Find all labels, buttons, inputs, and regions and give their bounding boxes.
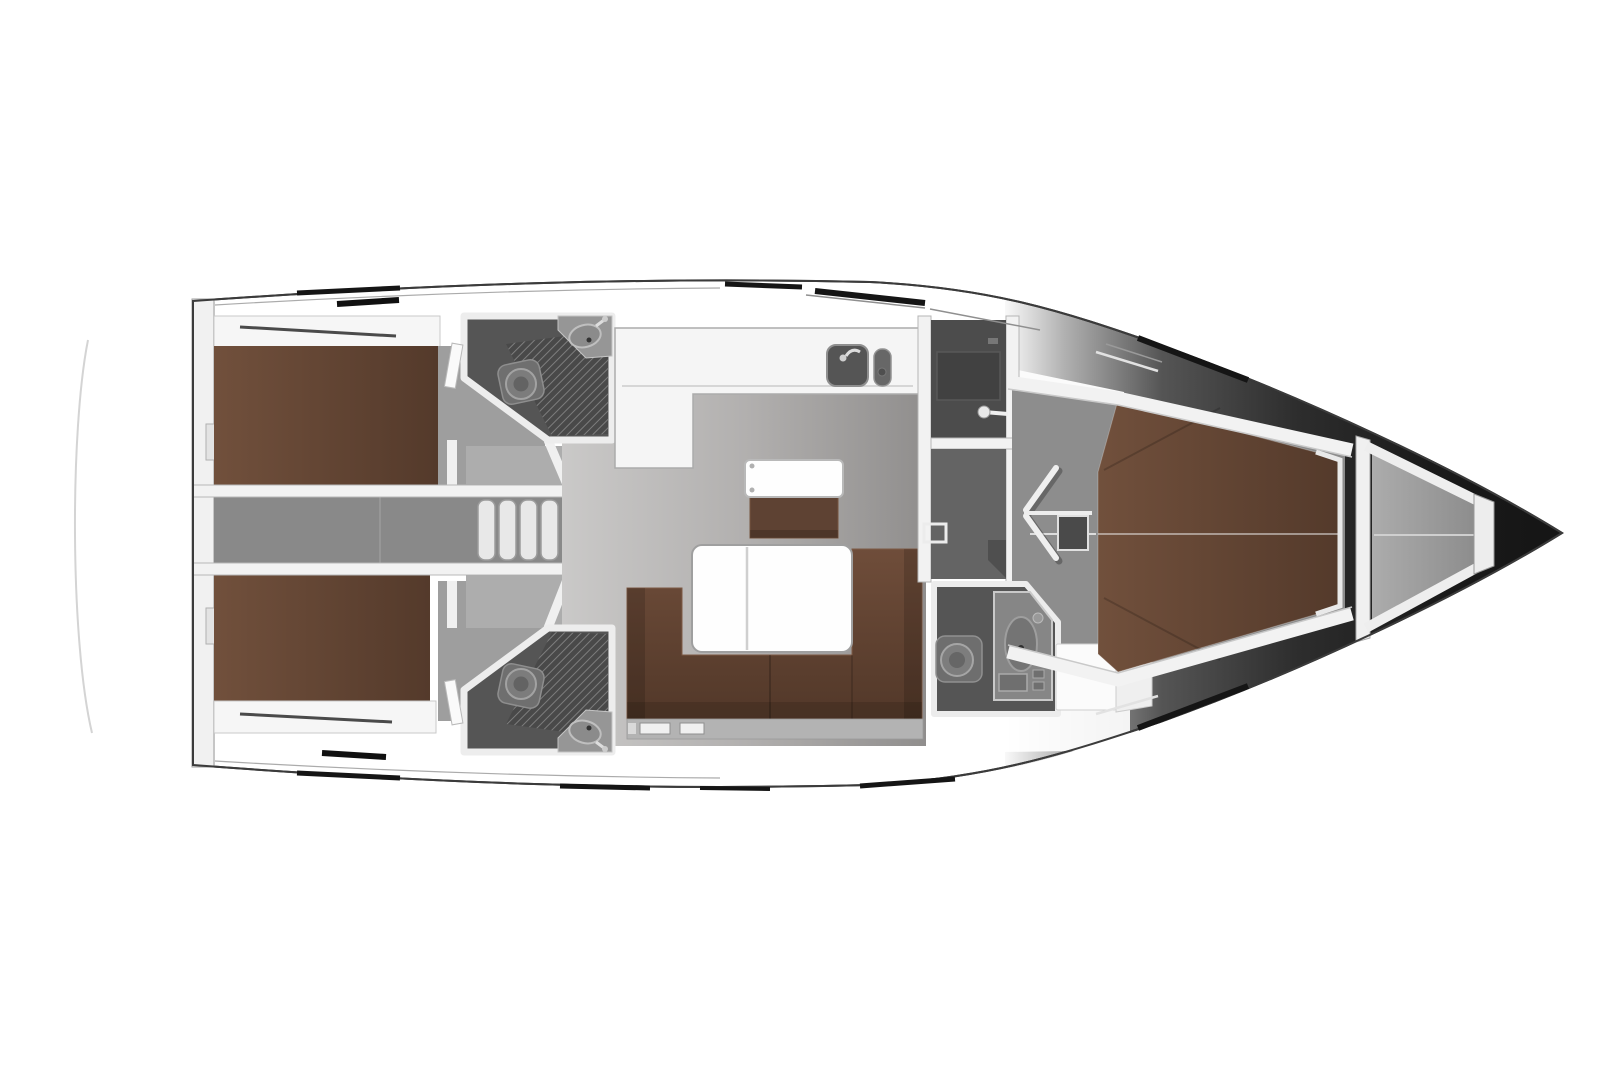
sofa-backrest-bottom: [627, 702, 922, 719]
toilet-icon: [936, 636, 982, 682]
yacht-floor-plan: [0, 0, 1619, 1080]
locker-hatch: [640, 723, 670, 734]
corridor-wall-bottom: [193, 563, 568, 575]
stern-platform-edge-line: [75, 340, 92, 733]
yacht-floor-plan-canvas: [0, 0, 1619, 1080]
toilet-icon: [496, 662, 545, 710]
toilet-icon: [496, 358, 545, 406]
chart-table-panel: [937, 352, 1000, 400]
locker-hatch: [680, 723, 704, 734]
bow-bulkhead: [1356, 436, 1370, 642]
deck-window-bottom: [322, 753, 386, 757]
aft-port-cabin-wall: [447, 440, 457, 487]
galley-half-sink-icon: [874, 349, 891, 386]
stern-platform: [75, 340, 92, 733]
sofa-backrest-left: [627, 588, 645, 719]
vanity-basin-icon: [994, 592, 1052, 700]
locker-hatch-small: [628, 723, 636, 734]
bedside-step: [1058, 516, 1088, 550]
aft-port-double-berth: [214, 346, 438, 487]
deck-window-top: [337, 300, 399, 304]
corridor-wall-top: [193, 485, 568, 497]
aft-stbd-cabin-wall: [447, 581, 457, 628]
door-hinge-icon: [978, 406, 990, 418]
under-sofa-lockers-strip: [627, 719, 923, 739]
anchor-locker-end-wall: [1474, 494, 1494, 574]
nav-wall-mid: [931, 438, 1019, 449]
transom: [192, 299, 216, 767]
galley-sink-icon: [827, 345, 868, 386]
side-table: [745, 460, 843, 497]
saloon-folding-table: [692, 545, 852, 652]
nav-station: [918, 316, 1019, 582]
aft-stbd-double-berth: [214, 573, 430, 703]
